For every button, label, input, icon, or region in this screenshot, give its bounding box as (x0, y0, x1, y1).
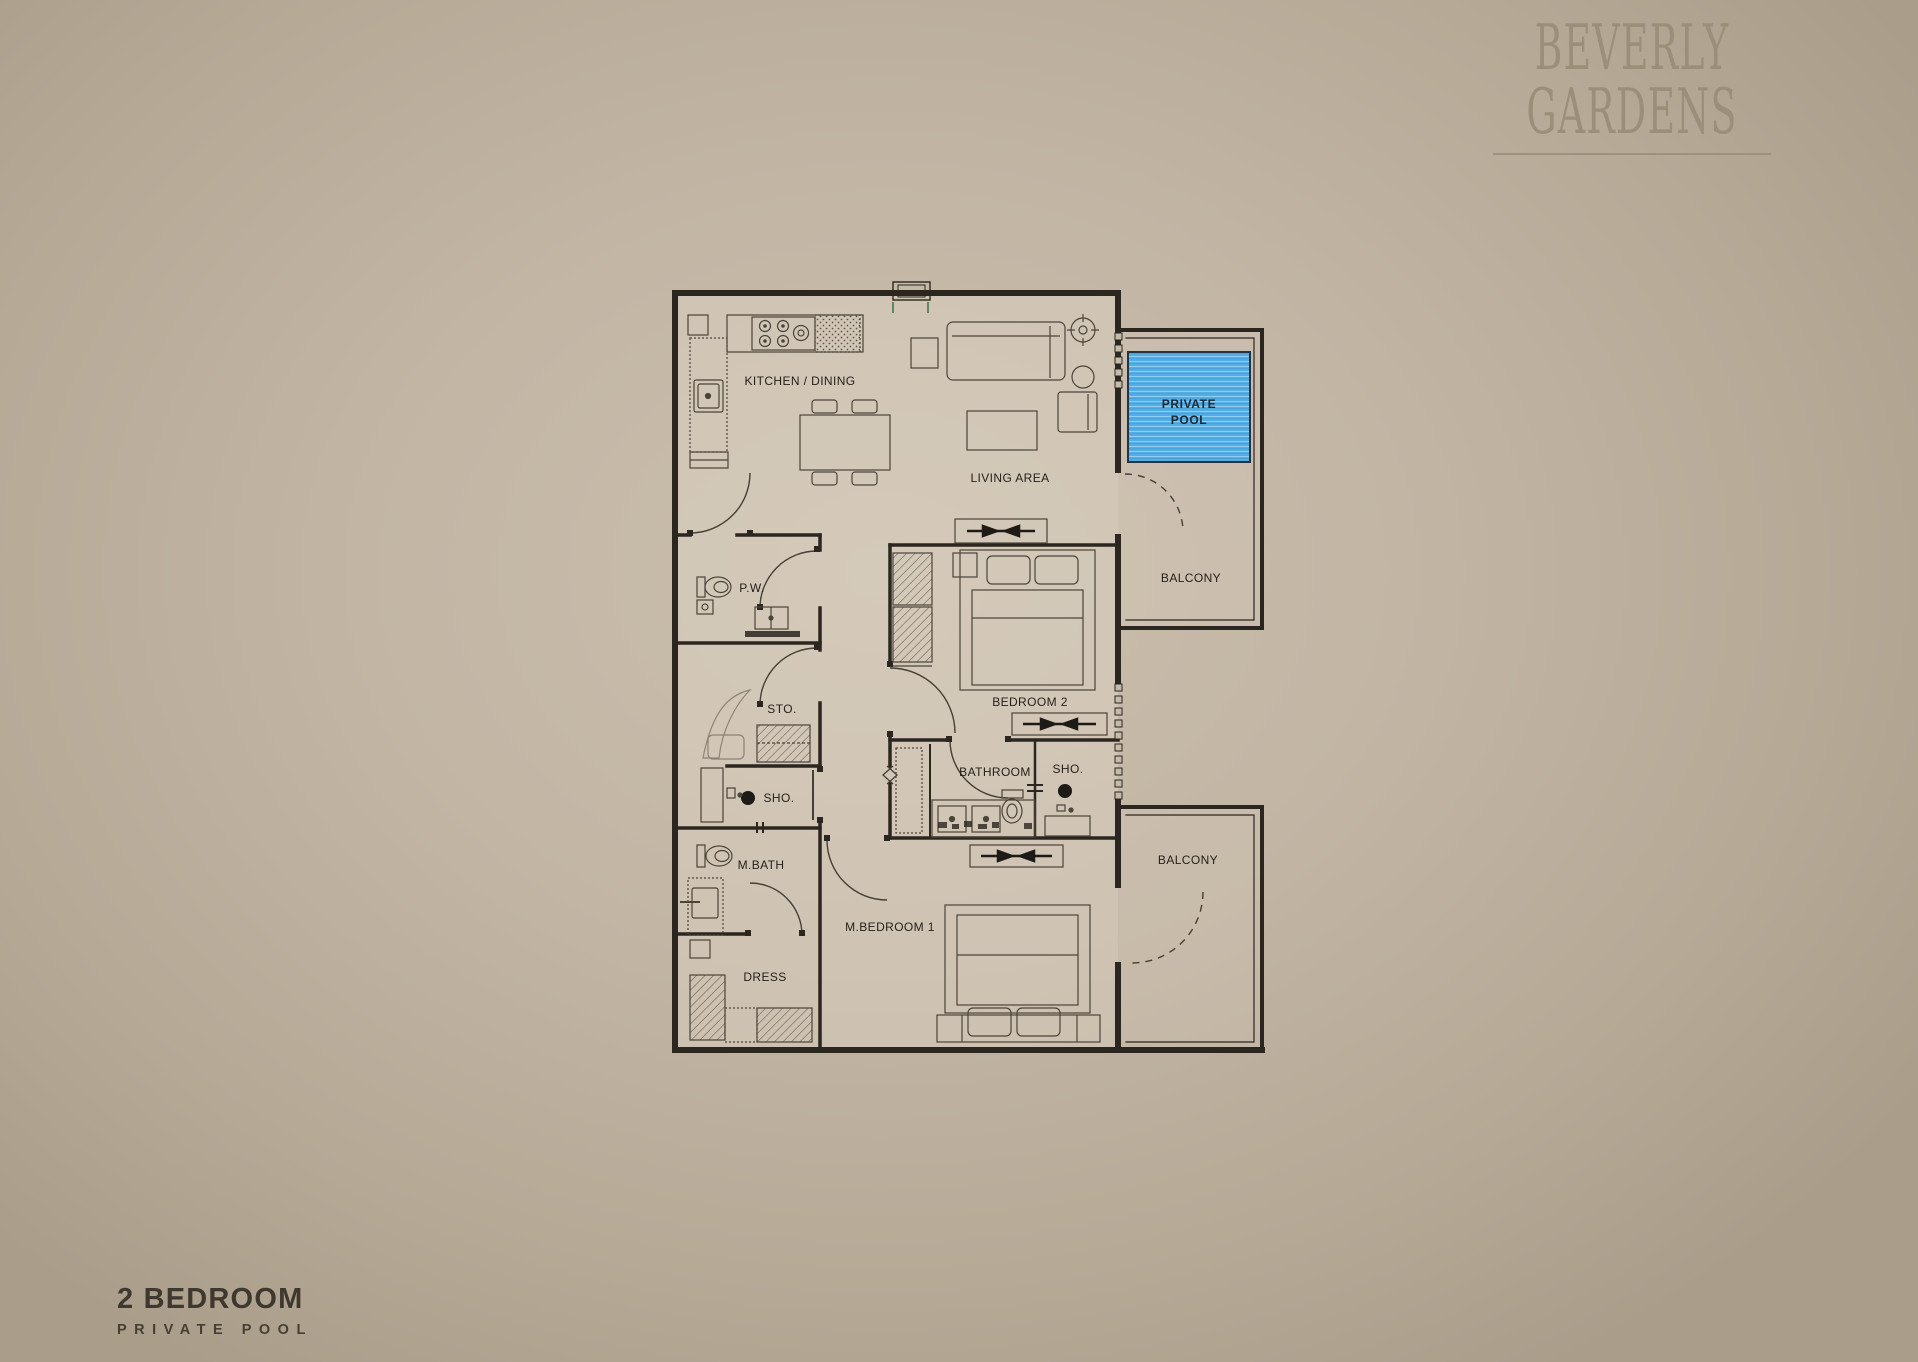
label-kitchen-dining: KITCHEN / DINING (744, 374, 855, 388)
label-shower-right: SHO. (1053, 762, 1084, 776)
label-master-bath: M.BATH (738, 858, 785, 872)
label-bedroom-2: BEDROOM 2 (992, 695, 1068, 709)
unit-title: 2 BEDROOM (117, 1283, 313, 1316)
label-private-pool-line1: PRIVATE (1162, 397, 1216, 411)
label-balcony-lower: BALCONY (1158, 853, 1218, 867)
label-storage: STO. (767, 702, 796, 716)
label-shower-left: SHO. (764, 791, 795, 805)
floor-plan: KITCHEN / DINING LIVING AREA PRIVATE POO… (0, 0, 1918, 1362)
label-private-pool-line2: POOL (1171, 413, 1207, 427)
label-living-area: LIVING AREA (970, 471, 1049, 485)
label-balcony-upper: BALCONY (1161, 571, 1221, 585)
unit-title-block: 2 BEDROOM PRIVATE POOL (117, 1283, 313, 1338)
unit-subtitle: PRIVATE POOL (117, 1322, 313, 1338)
label-dress: DRESS (743, 970, 786, 984)
label-powder-room: P.W. (739, 581, 764, 595)
page: BEVERLY GARDENS (0, 0, 1918, 1362)
label-master-bedroom: M.BEDROOM 1 (845, 920, 935, 934)
label-bathroom: BATHROOM (959, 765, 1031, 779)
